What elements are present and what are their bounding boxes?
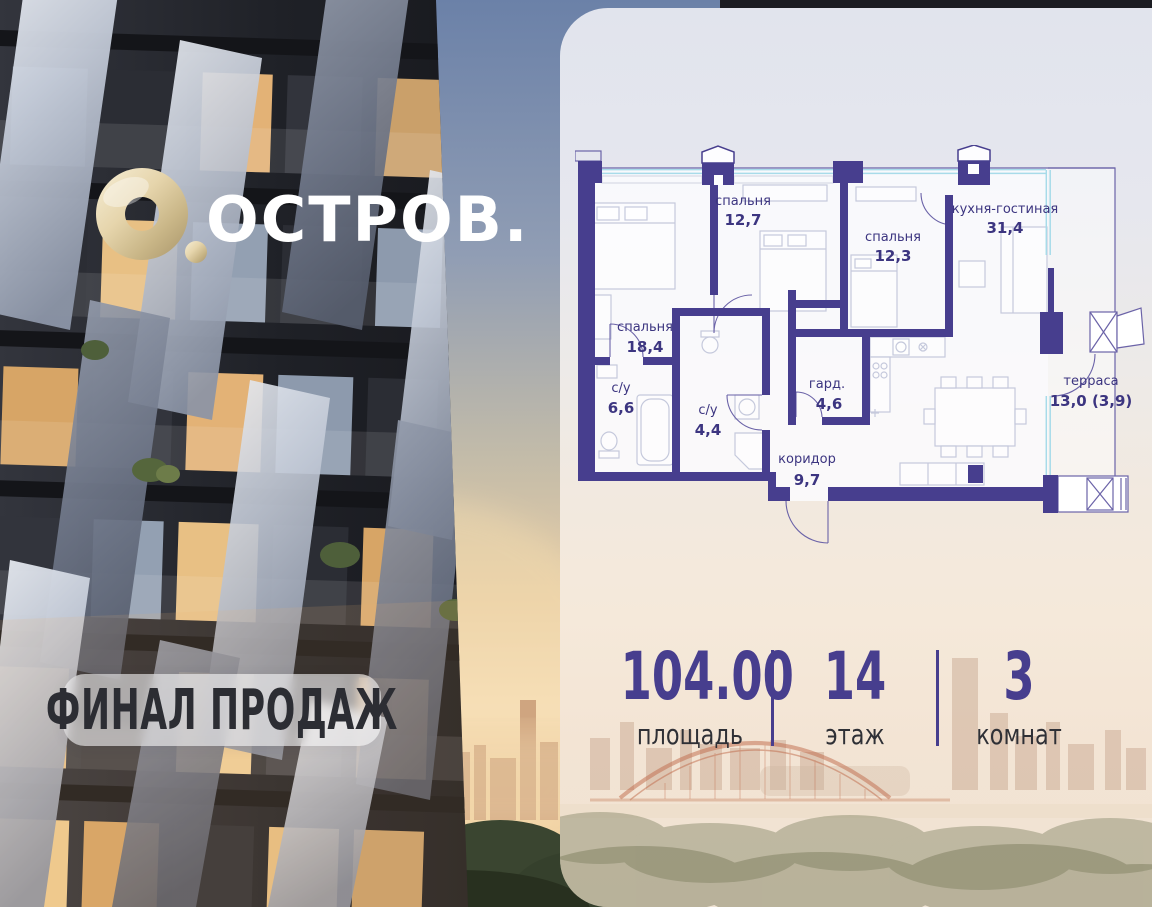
details-panel: спальня 12,7 спальня 12,3 кухня-гостиная… (560, 8, 1152, 907)
room-bath2-name: с/у (698, 403, 718, 418)
sales-status-label: ФИНАЛ ПРОДАЖ (46, 678, 398, 743)
room-kitchen-living-name: кухня-гостиная (952, 202, 1059, 217)
sales-status-badge: ФИНАЛ ПРОДАЖ (63, 674, 381, 746)
stat-floor-label: этаж (790, 718, 920, 751)
room-bedroom2-name: спальня (865, 230, 921, 245)
room-bath1-name: с/у (611, 381, 631, 396)
floor-plan: спальня 12,7 спальня 12,3 кухня-гостиная… (575, 145, 1150, 545)
stat-floor: 14 этаж (774, 646, 936, 751)
room-wardrobe-area: 4,6 (816, 395, 843, 413)
room-kitchen-living-area: 31,4 (986, 219, 1023, 237)
room-bath1-area: 6,6 (608, 399, 635, 417)
stat-rooms-value: 3 (965, 646, 1074, 708)
brand-wordmark: ОСТРОВ. (206, 183, 529, 256)
room-corridor-name: коридор (778, 452, 836, 467)
room-corridor-area: 9,7 (794, 471, 821, 489)
listing-card: ОСТРОВ. ФИНАЛ ПРОДАЖ (0, 0, 1152, 907)
stat-area-value: 104.00 (621, 646, 760, 708)
stat-area-label: площадь (608, 718, 771, 751)
pier-pentagons (702, 145, 990, 163)
room-terrace-area: 13,0 (3,9) (1050, 392, 1133, 410)
room-bedroom2-area: 12,3 (874, 247, 911, 265)
room-bath2-area: 4,4 (695, 421, 722, 439)
room-wardrobe-name: гард. (809, 377, 845, 392)
room-bedroom3-name: спальня (617, 320, 673, 335)
room-bedroom1-name: спальня (715, 194, 771, 209)
stat-rooms-label: комнат (955, 718, 1083, 751)
room-terrace-name: терраса (1063, 374, 1118, 389)
stat-area: 104.00 площадь (588, 646, 792, 751)
stat-rooms: 3 комнат (939, 646, 1099, 751)
stat-floor-value: 14 (800, 646, 910, 708)
room-bedroom3-area: 18,4 (626, 338, 663, 356)
room-bedroom1-area: 12,7 (724, 211, 761, 229)
stats-row: 104.00 площадь 14 этаж 3 комнат (560, 646, 1152, 762)
